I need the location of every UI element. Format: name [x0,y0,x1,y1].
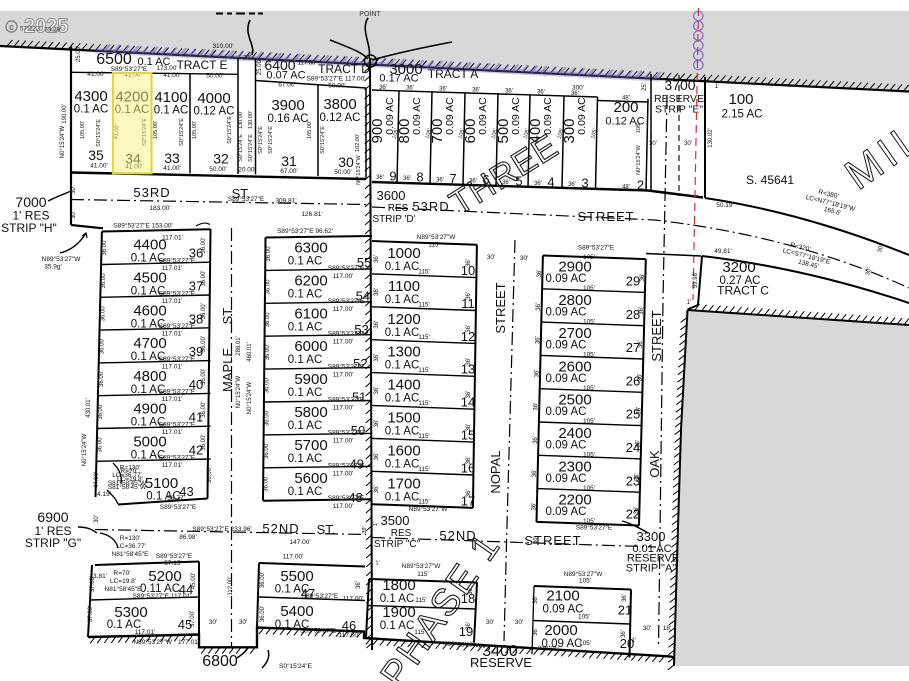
svg-text:S89°53'27"E: S89°53'27"E [328,428,365,436]
svg-text:0.16 AC: 0.16 AC [268,113,309,125]
svg-text:30': 30' [71,211,77,219]
svg-text:1100: 1100 [388,278,420,295]
svg-text:36': 36' [534,403,540,411]
svg-text:6800: 6800 [202,653,238,670]
svg-text:S89°53'27"E: S89°53'27"E [302,592,339,600]
svg-text:1300: 1300 [387,344,420,361]
svg-text:0.09 AC: 0.09 AC [546,406,587,418]
svg-text:30: 30 [338,154,354,170]
svg-text:36': 36' [533,436,539,444]
svg-text:S81°58'45"W: S81°58'45"W [108,483,147,491]
svg-text:STREET: STREET [493,282,508,333]
svg-text:36': 36' [635,473,641,481]
svg-text:0.1 AC: 0.1 AC [385,426,420,438]
svg-text:4100: 4100 [154,89,187,106]
svg-text:117.00': 117.00' [333,405,354,412]
svg-text:1200: 1200 [387,311,420,328]
svg-text:115': 115' [418,433,430,440]
svg-text:9: 9 [389,169,396,184]
svg-text:36.00': 36.00' [201,303,207,319]
svg-text:36.00': 36.00' [264,410,270,426]
svg-text:130.00': 130.00' [248,111,254,129]
svg-text:30': 30' [94,515,100,523]
svg-text:1': 1' [687,300,691,306]
svg-text:36': 36' [531,503,537,511]
svg-text:48': 48' [622,185,630,191]
svg-text:S89°53'27"E 117.00': S89°53'27"E 117.00' [307,75,366,83]
svg-text:36.00': 36.00' [265,311,271,327]
svg-text:N0°15'24"W: N0°15'24"W [247,381,253,414]
svg-text:36.00': 36.00' [207,467,213,483]
svg-text:0.1 AC: 0.1 AC [385,491,420,503]
svg-text:21: 21 [618,603,632,618]
svg-text:52ND: 52ND [262,521,299,536]
svg-text:S. 45641: S. 45641 [746,173,794,187]
svg-text:0.1 AC: 0.1 AC [385,458,420,470]
svg-text:4600: 4600 [133,302,166,319]
svg-text:N81°58'45"E: N81°58'45"E [105,585,143,593]
svg-text:5500: 5500 [280,568,313,585]
svg-text:108': 108' [636,123,642,133]
svg-text:36': 36' [374,288,380,296]
svg-text:N0°15'24"W: N0°15'24"W [60,125,66,158]
svg-text:LC=19.8': LC=19.8' [110,578,136,585]
svg-text:53RD: 53RD [133,185,170,200]
svg-text:R=130': R=130' [120,535,141,542]
svg-text:S89°53'27"E: S89°53'27"E [160,503,197,511]
svg-text:3300: 3300 [637,529,666,544]
svg-text:R=70': R=70' [114,570,131,577]
svg-text:36': 36' [356,581,362,589]
svg-text:S89°53'27"E 233.96': S89°53'27"E 233.96' [192,525,251,533]
svg-text:0.12 AC: 0.12 AC [320,112,361,124]
svg-text:173.00': 173.00' [156,65,177,72]
svg-text:TRACT C: TRACT C [717,284,769,298]
svg-text:0.1 AC: 0.1 AC [74,104,109,116]
svg-text:35.9g': 35.9g' [44,264,62,271]
svg-text:30': 30' [71,186,77,194]
svg-text:5100: 5100 [145,475,178,492]
svg-text:S89°53'27"E: S89°53'27"E [328,297,365,305]
svg-text:36': 36' [374,354,380,362]
svg-text:29: 29 [626,274,640,289]
svg-text:36': 36' [374,321,380,329]
svg-text:36.00': 36.00' [201,270,207,286]
svg-text:105.00': 105.00' [192,121,198,139]
svg-text:36.00': 36.00' [97,436,103,452]
svg-text:0.1 AC: 0.1 AC [288,486,323,498]
svg-text:56.77': 56.77' [167,495,185,502]
svg-text:126.81': 126.81' [301,211,322,218]
svg-text:36.00': 36.00' [266,278,272,294]
svg-text:1000: 1000 [387,245,420,262]
svg-text:33: 33 [164,150,180,166]
svg-text:0.1 AC: 0.1 AC [288,420,323,432]
svg-text:N0°15'24"W: N0°15'24"W [636,144,642,174]
svg-text:N0°15'24"W: N0°15'24"W [356,154,362,184]
svg-text:117.00': 117.00' [339,632,360,639]
svg-text:102.00': 102.00' [355,134,361,152]
svg-text:6300: 6300 [294,240,327,257]
svg-text:36.00': 36.00' [265,377,271,393]
svg-text:1': 1' [375,561,379,567]
svg-text:S89°53'27"E: S89°53'27"E [576,524,613,532]
svg-text:S89°53'27"E 153.00': S89°53'27"E 153.00' [113,222,172,230]
svg-text:36': 36' [537,90,545,96]
svg-text:36.00': 36.00' [102,239,108,255]
svg-text:0.09 AC: 0.09 AC [546,440,587,452]
svg-text:S89°53'27"E: S89°53'27"E [159,257,196,265]
svg-text:4800: 4800 [133,368,166,385]
svg-text:S89°53'27"E 117.01': S89°53'27"E 117.01' [133,592,192,600]
svg-text:TRACT A: TRACT A [428,67,478,81]
svg-text:4400: 4400 [133,237,166,254]
svg-text:3: 3 [581,176,588,191]
svg-text:6900: 6900 [37,509,68,525]
svg-text:36': 36' [636,407,642,415]
svg-text:4300: 4300 [74,88,107,105]
svg-text:41.00': 41.00' [90,163,108,170]
svg-text:36': 36' [536,303,542,311]
svg-text:1500: 1500 [387,410,420,427]
svg-text:25': 25' [642,83,648,91]
svg-text:S0°15'24"E: S0°15'24"E [179,118,185,146]
svg-text:36': 36' [534,181,542,187]
svg-text:N0°15'24"W: N0°15'24"W [236,375,242,408]
svg-text:115': 115' [418,334,430,341]
svg-text:0.1 AC: 0.1 AC [385,393,420,405]
svg-text:36.00': 36.00' [201,336,207,352]
svg-text:6100: 6100 [294,305,327,322]
svg-text:0.09 AC: 0.09 AC [411,97,423,135]
svg-text:4900: 4900 [133,401,166,418]
svg-text:3700: 3700 [664,77,695,93]
svg-text:0.09 AC: 0.09 AC [477,97,489,135]
svg-text:30': 30' [533,536,539,543]
svg-text:4700: 4700 [133,335,166,352]
svg-text:STRIP "H": STRIP "H" [1,221,57,235]
svg-text:36': 36' [622,594,628,602]
svg-text:0.1 AC: 0.1 AC [385,327,420,339]
svg-text:115': 115' [418,367,430,374]
svg-text:36': 36' [533,628,539,636]
svg-text:20': 20' [243,56,251,62]
svg-text:117.00': 117.00' [283,554,304,561]
svg-text:117.00': 117.00' [333,306,354,313]
svg-text:112.00': 112.00' [228,576,234,595]
svg-text:N89°53'27"W: N89°53'27"W [402,562,442,570]
svg-text:41.00': 41.00' [87,71,105,78]
svg-text:50.00': 50.00' [209,166,227,173]
svg-text:0.12 AC: 0.12 AC [194,106,235,118]
svg-text:5700: 5700 [294,437,327,454]
svg-text:S89°53'27"E: S89°53'27"E [156,552,193,560]
svg-text:115': 115' [418,466,430,473]
svg-text:39': 39' [362,526,368,533]
svg-text:147.00': 147.00' [289,539,310,546]
svg-text:8: 8 [416,170,423,185]
svg-text:36.00': 36.00' [260,572,266,588]
svg-text:36.00': 36.00' [266,245,272,261]
svg-text:18': 18' [663,625,671,632]
svg-text:STRIP "A": STRIP "A" [626,563,676,575]
svg-text:20.00': 20.00' [238,167,256,174]
svg-text:S89°53'27"E: S89°53'27"E [228,195,265,203]
svg-text:105': 105' [578,614,590,621]
svg-text:0.09 AC: 0.09 AC [546,506,587,518]
svg-text:0.09 AC: 0.09 AC [546,306,587,318]
svg-text:0.1 AC: 0.1 AC [288,321,323,333]
svg-text:36': 36' [466,325,472,333]
svg-text:S0°15'24"E: S0°15'24"E [238,134,244,162]
svg-text:36': 36' [535,336,541,344]
svg-text:0.1 AC: 0.1 AC [154,105,189,117]
svg-text:117.00': 117.00' [333,470,354,477]
svg-text:32: 32 [213,151,229,167]
svg-text:OAK: OAK [647,450,662,478]
svg-text:1': 1' [632,638,636,644]
svg-text:5000: 5000 [133,434,166,451]
svg-text:117.00': 117.00' [333,372,354,379]
svg-text:N89°53'27"W: N89°53'27"W [409,505,449,513]
svg-text:44.00': 44.00' [94,472,100,488]
svg-text:0.09 AC: 0.09 AC [510,97,522,135]
svg-text:36': 36' [374,387,380,395]
svg-text:48': 48' [622,96,630,102]
svg-text:0.1 AC: 0.1 AC [288,354,323,366]
svg-text:36.00': 36.00' [100,338,106,354]
svg-text:N81°58'45"E: N81°58'45"E [112,550,150,558]
svg-text:1400: 1400 [387,377,420,394]
svg-text:36': 36' [466,622,472,630]
svg-text:0.1 AC: 0.1 AC [288,453,323,465]
svg-text:37.00': 37.00' [90,576,96,592]
svg-text:S89°53'27"E: S89°53'27"E [328,396,365,404]
svg-text:36': 36' [568,182,576,188]
svg-text:288.01': 288.01' [236,336,242,356]
svg-text:36': 36' [466,391,472,399]
svg-text:105.00': 105.00' [307,121,313,139]
svg-text:50.00': 50.00' [328,83,346,90]
svg-text:190.00': 190.00' [62,104,68,124]
svg-text:N89°53'27"W: N89°53'27"W [42,255,82,263]
svg-text:5600: 5600 [294,470,327,487]
svg-text:0.17 AC: 0.17 AC [379,73,418,85]
svg-text:36': 36' [439,87,447,93]
svg-text:115': 115' [417,571,429,578]
svg-text:25.00': 25.00' [257,59,263,75]
svg-text:67.00': 67.00' [280,168,298,175]
svg-text:0.1 AC: 0.1 AC [385,294,420,306]
svg-text:73.29': 73.29' [44,27,62,34]
svg-text:36': 36' [636,440,642,448]
svg-text:36.00': 36.00' [201,402,207,418]
svg-text:59.98': 59.98' [693,272,699,288]
svg-text:53RD: 53RD [412,199,449,214]
svg-text:S89°53'27"E: S89°53'27"E [159,388,196,396]
svg-text:1800: 1800 [382,577,415,594]
svg-text:30': 30' [239,619,247,626]
svg-text:S0°15'24"E: S0°15'24"E [227,116,233,144]
svg-text:6200: 6200 [294,272,327,289]
svg-text:S89°53'27"E: S89°53'27"E [159,355,196,363]
svg-text:2.15 AC: 2.15 AC [722,109,763,121]
svg-text:36': 36' [466,358,472,366]
svg-text:30': 30' [486,619,494,626]
svg-text:S89°53'27"E 96.62': S89°53'27"E 96.62' [277,227,333,235]
svg-text:36': 36' [505,89,513,95]
svg-text:36.00': 36.00' [264,443,270,459]
svg-text:30': 30' [684,141,692,147]
svg-text:0.09 AC: 0.09 AC [542,638,583,650]
svg-text:5900: 5900 [294,371,327,388]
svg-text:0.1 AC: 0.1 AC [288,387,323,399]
svg-text:0.09 AC: 0.09 AC [576,97,588,135]
svg-text:0.09 AC: 0.09 AC [444,97,456,135]
svg-text:S89°53'27"E: S89°53'27"E [159,322,196,330]
svg-text:1700: 1700 [387,475,420,492]
svg-text:ST.: ST. [317,522,336,537]
svg-text:0.09 AC: 0.09 AC [546,473,587,485]
svg-text:36': 36' [472,88,480,94]
svg-text:117.00': 117.00' [333,273,354,280]
svg-text:S89°53'27"E: S89°53'27"E [328,494,365,502]
svg-text:25.00': 25.00' [76,46,82,62]
svg-text:36.00': 36.00' [264,476,270,492]
svg-text:S89°53'27"E: S89°53'27"E [159,453,196,461]
svg-text:49.81': 49.81' [714,248,732,255]
svg-text:36': 36' [535,369,541,377]
svg-text:STRIP "C": STRIP "C" [374,539,421,550]
svg-text:S0°15'24"E: S0°15'24"E [248,134,254,162]
svg-text:0.09 AC: 0.09 AC [546,340,587,352]
svg-text:130.02': 130.02' [708,128,714,148]
svg-text:3600: 3600 [377,188,406,203]
svg-text:5800: 5800 [294,404,327,421]
svg-text:0.1 AC: 0.1 AC [385,360,420,372]
svg-text:105': 105' [579,640,591,647]
svg-text:S0°15'24"E: S0°15'24"E [268,126,274,154]
svg-text:115': 115' [418,400,430,407]
svg-text:36.00': 36.00' [99,371,105,387]
svg-text:105': 105' [579,578,591,585]
svg-text:105.00': 105.00' [153,121,159,139]
svg-text:105.00': 105.00' [80,121,86,139]
svg-text:3900: 3900 [271,97,304,114]
svg-text:41.00': 41.00' [163,72,181,79]
svg-text:36': 36' [637,373,643,381]
svg-text:30': 30' [520,255,528,262]
svg-text:117.00': 117.00' [333,339,354,346]
svg-text:36': 36' [466,489,472,497]
svg-text:36.00': 36.00' [100,305,106,321]
svg-text:TRACT D: TRACT D [318,62,370,76]
svg-text:50.00': 50.00' [334,169,352,176]
svg-text:117.00': 117.00' [333,437,354,444]
svg-text:36.00': 36.00' [265,344,271,360]
svg-text:115': 115' [418,268,430,275]
svg-text:MAPLE: MAPLE [220,348,235,392]
svg-text:57°22'2": 57°22'2" [20,27,42,33]
svg-text:36.00': 36.00' [201,237,207,253]
svg-text:S89°53'27"E: S89°53'27"E [328,264,365,272]
svg-text:0.1 AC: 0.1 AC [288,288,323,300]
svg-text:200: 200 [613,99,638,116]
svg-text:STREET: STREET [649,310,664,361]
svg-text:36.00': 36.00' [201,434,207,450]
svg-text:3500: 3500 [381,513,410,528]
svg-text:ST.: ST. [220,306,235,325]
svg-text:STRIP 'D': STRIP 'D' [372,214,415,225]
svg-text:117.00': 117.00' [333,503,354,510]
svg-text:115': 115' [418,499,430,506]
svg-text:41.00': 41.00' [163,165,181,172]
svg-text:3200: 3200 [722,259,755,276]
svg-text:LC=36.77': LC=36.77' [116,543,146,550]
svg-text:2100: 2100 [546,588,579,605]
svg-text:S89°53'27"E: S89°53'27"E [159,289,196,297]
svg-text:36': 36' [466,456,472,464]
svg-text:30': 30' [515,619,523,626]
svg-text:NOPAL: NOPAL [488,450,503,493]
svg-text:36': 36' [537,270,543,278]
svg-text:30': 30' [487,254,495,261]
svg-text:S89°53'27"E: S89°53'27"E [159,421,196,429]
svg-text:0.09 AC: 0.09 AC [546,273,587,285]
svg-text:36.00': 36.00' [101,272,107,288]
svg-text:36': 36' [403,176,411,182]
svg-text:430.01': 430.01' [86,398,92,418]
svg-text:36': 36' [374,420,380,428]
svg-text:50.00': 50.00' [206,73,224,80]
svg-text:36': 36' [533,596,539,604]
svg-text:1': 1' [715,84,719,90]
svg-text:36': 36' [639,307,645,315]
svg-text:30': 30' [643,625,651,632]
svg-text:1': 1' [373,522,379,526]
svg-text:36': 36' [436,177,444,183]
svg-text:S0°15'24"E: S0°15'24"E [96,119,102,147]
svg-text:36': 36' [466,424,472,432]
svg-text:37.00': 37.00' [88,606,94,622]
svg-text:3800: 3800 [323,96,356,113]
svg-text:S89°53'27"E: S89°53'27"E [328,461,365,469]
svg-text:STRIP "G": STRIP "G" [25,536,81,550]
svg-text:S89°53'27"E: S89°53'27"E [328,363,365,371]
svg-text:36': 36' [638,340,644,348]
svg-text:36': 36' [406,86,414,92]
svg-text:POINT: POINT [359,11,381,18]
svg-text:36': 36' [466,292,472,300]
svg-text:45.00': 45.00' [191,573,197,589]
svg-text:36': 36' [374,255,380,263]
svg-text:130.00': 130.00' [238,111,244,129]
svg-text:30': 30' [649,141,657,147]
svg-text:1600: 1600 [387,442,420,459]
svg-text:100: 100 [728,91,753,108]
svg-text:4: 4 [547,175,554,190]
svg-text:RES: RES [391,528,412,539]
svg-text:4500: 4500 [133,270,166,287]
svg-text:RESERVE: RESERVE [470,655,532,670]
svg-text:0.09 AC: 0.09 AC [546,373,587,385]
svg-text:S0°15'24"E: S0°15'24"E [258,126,264,154]
svg-text:36': 36' [376,175,384,181]
svg-text:S89°53'27"E: S89°53'27"E [578,244,615,252]
svg-text:310.00': 310.00' [212,43,233,50]
svg-text:36': 36' [379,85,387,91]
svg-text:36': 36' [634,507,640,515]
